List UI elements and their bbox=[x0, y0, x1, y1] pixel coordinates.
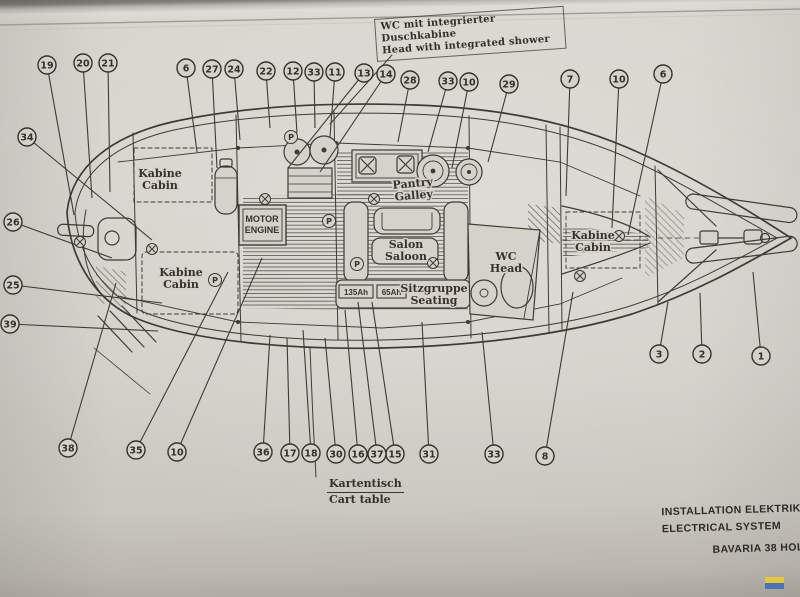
callout-29: 29 bbox=[500, 75, 518, 93]
callout-22: 22 bbox=[257, 62, 275, 80]
callout-33: 33 bbox=[305, 63, 323, 81]
callout-leader-37 bbox=[358, 302, 377, 454]
room-label-line2: Cabin bbox=[142, 179, 178, 192]
callout-6: 6 bbox=[177, 59, 195, 77]
callout-number: 1 bbox=[758, 351, 765, 362]
callout-leader-39 bbox=[10, 324, 158, 331]
callout-leader-27 bbox=[212, 69, 217, 168]
callout-number: 6 bbox=[660, 69, 667, 80]
callout-number: 17 bbox=[283, 448, 296, 459]
title-model: BAVARIA 38 HOLIDAY bbox=[712, 539, 800, 559]
callout-35: 35 bbox=[127, 441, 145, 459]
callout-number: 18 bbox=[304, 448, 318, 459]
cart-table-label-de: Kartentisch bbox=[327, 477, 404, 493]
callout-34: 34 bbox=[18, 128, 36, 146]
callout-38: 38 bbox=[59, 439, 77, 457]
callout-leader-31 bbox=[422, 322, 429, 454]
callout-3: 3 bbox=[650, 345, 668, 363]
battery-135Ah: 135Ah bbox=[339, 285, 373, 298]
callout-leader-16 bbox=[345, 310, 358, 454]
callout-number: 35 bbox=[129, 445, 142, 456]
callout-leader-17 bbox=[287, 338, 290, 453]
scanned-boat-plan-photo: PPPP 19202162724221233111314283310297106… bbox=[0, 0, 800, 597]
callout-number: 13 bbox=[357, 68, 370, 79]
room-label-cabin-aft-stbd: KabineCabin bbox=[159, 266, 203, 291]
callout-leader-24 bbox=[234, 69, 240, 140]
callout-7: 7 bbox=[561, 70, 579, 88]
callout-number: 16 bbox=[351, 449, 365, 460]
callout-number: 33 bbox=[487, 449, 500, 460]
callout-number: 7 bbox=[567, 74, 574, 85]
room-label-line1: MOTOR bbox=[245, 214, 279, 224]
callout-number: 24 bbox=[227, 64, 241, 75]
circled-x-light-icon bbox=[575, 271, 586, 282]
callout-leader-25 bbox=[13, 285, 162, 303]
room-label-line2: Head bbox=[490, 262, 523, 275]
callout-24: 24 bbox=[225, 60, 243, 78]
callout-leader-36 bbox=[263, 335, 270, 452]
circled-p-pump-icon: P bbox=[323, 215, 336, 228]
callout-number: 30 bbox=[329, 449, 343, 460]
callout-8: 8 bbox=[536, 447, 554, 465]
room-label-cabin-fore: KabineCabin bbox=[571, 229, 615, 254]
room-label-galley: PantryGalley bbox=[392, 175, 435, 203]
callout-27: 27 bbox=[203, 60, 221, 78]
callout-number: 2 bbox=[699, 349, 706, 360]
room-label-cabin-aft-port: KabineCabin bbox=[138, 167, 182, 192]
callout-number: 8 bbox=[542, 451, 549, 462]
callout-1: 1 bbox=[752, 347, 770, 365]
callout-leader-33 bbox=[482, 332, 494, 454]
callout-leader-19 bbox=[47, 65, 74, 215]
callout-leader-35 bbox=[136, 272, 228, 450]
room-label-line2: Cabin bbox=[575, 241, 611, 254]
logo-blue-half bbox=[765, 583, 784, 589]
callout-30: 30 bbox=[327, 445, 345, 463]
svg-text:P: P bbox=[288, 133, 294, 142]
room-label-line2: Seating bbox=[410, 294, 457, 307]
title-block: INSTALLATION ELEKTRIK ELECTRICAL SYSTEM … bbox=[661, 500, 800, 560]
callout-leader-1 bbox=[753, 272, 761, 356]
callout-16: 16 bbox=[349, 445, 367, 463]
callout-number: 33 bbox=[441, 76, 454, 87]
callout-number: 25 bbox=[6, 280, 19, 291]
callout-number: 37 bbox=[370, 449, 383, 460]
room-label-engine: MOTORENGINE bbox=[245, 214, 280, 235]
callout-number: 36 bbox=[256, 447, 270, 458]
callout-37: 37 bbox=[368, 445, 386, 463]
callout-11: 11 bbox=[326, 63, 344, 81]
callout-number: 15 bbox=[388, 449, 401, 460]
callout-21: 21 bbox=[99, 54, 117, 72]
callout-6: 6 bbox=[654, 65, 672, 83]
callout-number: 33 bbox=[307, 67, 320, 78]
callout-number: 22 bbox=[259, 66, 272, 77]
room-label-saloon: SalonSaloon bbox=[385, 238, 427, 263]
battery-capacity-label: 135Ah bbox=[344, 288, 368, 297]
callout-leader-38 bbox=[68, 283, 116, 448]
circled-x-light-icon bbox=[428, 258, 439, 269]
callout-13: 13 bbox=[355, 64, 373, 82]
callout-number: 3 bbox=[656, 349, 663, 360]
circled-x-light-icon bbox=[614, 231, 625, 242]
callout-number: 27 bbox=[205, 64, 218, 75]
callout-12: 12 bbox=[284, 62, 302, 80]
circled-x-light-icon bbox=[369, 194, 380, 205]
callout-number: 29 bbox=[502, 79, 515, 90]
callout-20: 20 bbox=[74, 54, 92, 72]
callout-number: 11 bbox=[328, 67, 341, 78]
callout-17: 17 bbox=[281, 444, 299, 462]
circled-p-pump-icon: P bbox=[285, 131, 298, 144]
circled-x-light-icon bbox=[75, 237, 86, 248]
callout-number: 31 bbox=[422, 449, 435, 460]
callout-number: 21 bbox=[101, 58, 114, 69]
callout-number: 10 bbox=[170, 447, 184, 458]
callout-number: 12 bbox=[286, 66, 299, 77]
companionway bbox=[284, 136, 338, 198]
room-label-line2: Cabin bbox=[163, 278, 199, 291]
circled-p-pump-icon: P bbox=[351, 258, 364, 271]
callout-leader-7 bbox=[566, 79, 570, 196]
circled-x-light-icon bbox=[147, 244, 158, 255]
callout-33: 33 bbox=[439, 72, 457, 90]
callout-28: 28 bbox=[401, 71, 419, 89]
callout-18: 18 bbox=[302, 444, 320, 462]
callout-31: 31 bbox=[420, 445, 438, 463]
callout-number: 28 bbox=[403, 75, 417, 86]
callout-number: 10 bbox=[462, 77, 476, 88]
callout-number: 14 bbox=[379, 69, 393, 80]
callout-leader-26 bbox=[13, 222, 112, 258]
circled-x-light-icon bbox=[260, 194, 271, 205]
callout-number: 39 bbox=[3, 319, 16, 330]
callout-14: 14 bbox=[377, 65, 395, 83]
callout-10: 10 bbox=[610, 70, 628, 88]
callout-number: 19 bbox=[40, 60, 53, 71]
title-en: ELECTRICAL SYSTEM bbox=[662, 517, 800, 538]
callout-leader-33 bbox=[428, 81, 448, 152]
cart-table-label: Kartentisch Cart table bbox=[327, 477, 404, 507]
svg-text:P: P bbox=[326, 217, 332, 226]
callout-2: 2 bbox=[693, 345, 711, 363]
svg-text:P: P bbox=[212, 276, 218, 285]
callout-leader-6 bbox=[186, 68, 197, 152]
callout-33: 33 bbox=[485, 445, 503, 463]
pulpit-rail-top bbox=[685, 193, 798, 223]
callout-36: 36 bbox=[254, 443, 272, 461]
battery-boxes: 135Ah65Ah bbox=[339, 285, 406, 298]
callout-leader-21 bbox=[108, 63, 110, 192]
callout-15: 15 bbox=[386, 445, 404, 463]
callout-number: 10 bbox=[612, 74, 626, 85]
callout-10: 10 bbox=[168, 443, 186, 461]
svg-text:P: P bbox=[354, 260, 360, 269]
callout-number: 38 bbox=[61, 443, 75, 454]
circled-p-pump-icon: P bbox=[209, 274, 222, 287]
callout-leader-15 bbox=[372, 302, 395, 454]
callout-leader-20 bbox=[83, 63, 92, 198]
callout-39: 39 bbox=[1, 315, 19, 333]
callout-leader-30 bbox=[325, 338, 336, 454]
callout-number: 26 bbox=[6, 217, 20, 228]
corner-logo bbox=[765, 577, 784, 589]
callout-26: 26 bbox=[4, 213, 22, 231]
cart-table-label-en: Cart table bbox=[327, 493, 404, 507]
battery-capacity-label: 65Ah bbox=[382, 288, 402, 297]
room-label-line2: ENGINE bbox=[245, 225, 280, 235]
callout-25: 25 bbox=[4, 276, 22, 294]
room-label-line2: Saloon bbox=[385, 250, 427, 263]
callout-19: 19 bbox=[38, 56, 56, 74]
callout-10: 10 bbox=[460, 73, 478, 91]
callout-number: 34 bbox=[20, 132, 34, 143]
callout-number: 6 bbox=[183, 63, 190, 74]
callout-number: 20 bbox=[76, 58, 90, 69]
